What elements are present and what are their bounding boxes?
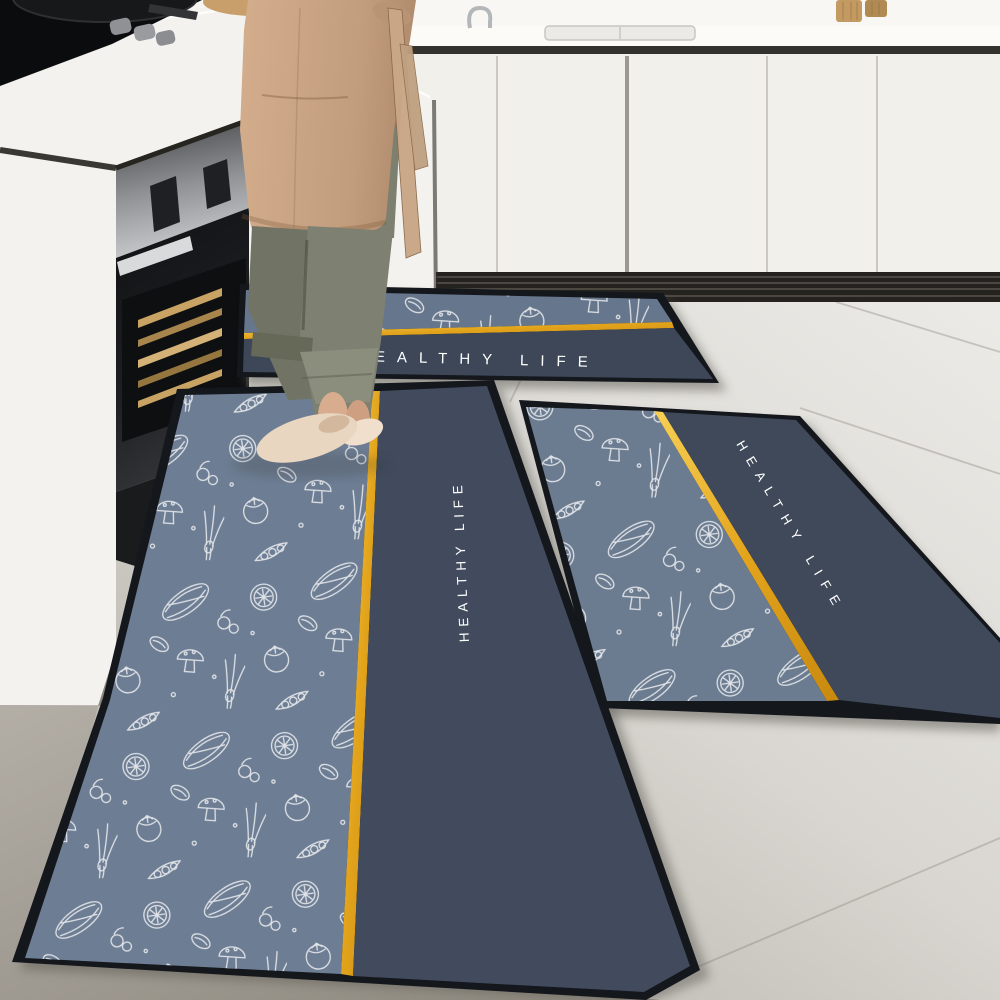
island-cabinet-column: [0, 140, 116, 705]
scene-canvas: HEALTHY LIFE HEALTHY LIFE HEALTHY LIFE: [0, 0, 1000, 1000]
oven-handle-right: [203, 159, 231, 209]
sink: [545, 26, 695, 40]
kitchen-scene-photo: HEALTHY LIFE HEALTHY LIFE HEALTHY LIFE: [0, 0, 1000, 1000]
island-corner-shadow: [434, 100, 436, 308]
oven-handle-left: [150, 176, 180, 232]
